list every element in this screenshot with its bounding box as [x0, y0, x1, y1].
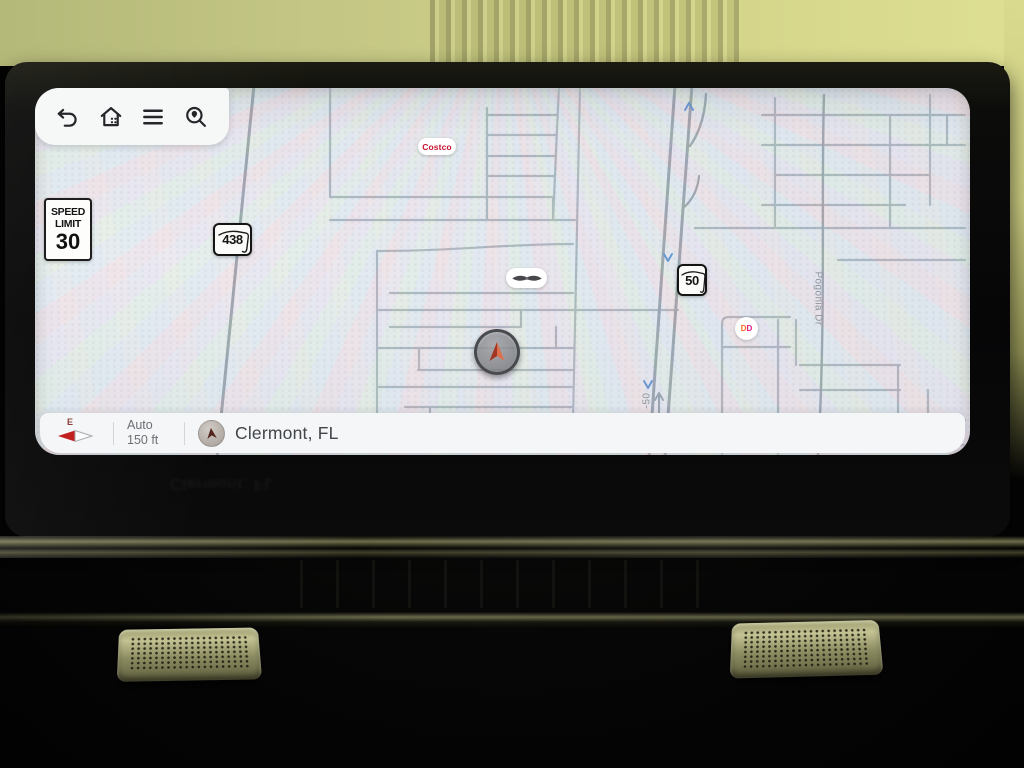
compass-needle-icon: [57, 427, 93, 445]
scale-indicator[interactable]: Auto 150 ft: [127, 418, 171, 448]
compass[interactable]: E: [54, 417, 100, 449]
home-icon: [98, 104, 124, 130]
street-label-pogonia: Pogonia Dr: [813, 269, 824, 329]
location-chip[interactable]: Clermont, FL: [198, 420, 339, 447]
speed-limit-sign: SPEED LIMIT 30: [44, 198, 92, 261]
poi-costco-label[interactable]: Costco: [418, 138, 456, 155]
poi-dunkin-badge[interactable]: DD: [735, 317, 758, 340]
vehicle-marker: [474, 329, 520, 375]
search-button[interactable]: [180, 101, 212, 133]
divider: [113, 422, 114, 445]
location-arrow-icon: [202, 424, 221, 443]
window-background: [0, 0, 1024, 66]
search-location-icon: [183, 104, 209, 130]
dash-trim-upper: [0, 536, 1024, 558]
route-shield-50: 50: [677, 264, 707, 296]
back-button[interactable]: [52, 101, 84, 133]
hamburger-menu-icon: [140, 104, 166, 130]
route-shield-438: 438: [213, 223, 252, 256]
compass-direction-label: E: [67, 417, 73, 427]
right-vent-tab: [730, 620, 884, 679]
menu-button[interactable]: [137, 101, 169, 133]
speed-limit-text-1: SPEED: [51, 207, 85, 218]
location-label: Clermont, FL: [235, 423, 339, 444]
location-arrow-badge: [198, 420, 225, 447]
screen-reflection: Clermont, FL: [170, 474, 690, 492]
shield-number: 50: [685, 273, 699, 288]
speed-limit-text-2: LIMIT: [55, 219, 81, 230]
poi-dealership-badge[interactable]: [506, 268, 547, 288]
vent-mesh: [742, 628, 870, 669]
zoom-mode-label: Auto: [127, 418, 171, 433]
undo-arrow-icon: [55, 104, 81, 130]
navigation-arrow-icon: [484, 339, 510, 365]
dunkin-text: DD: [741, 324, 753, 333]
infotainment-screen[interactable]: Pogonia Dr -50 Costco DD 438: [35, 88, 970, 455]
vent-mesh: [129, 635, 249, 672]
winged-emblem-icon: [511, 273, 543, 284]
scale-value: 150 ft: [127, 433, 171, 448]
display-bezel: Pogonia Dr -50 Costco DD 438: [5, 62, 1010, 537]
home-button[interactable]: [95, 101, 127, 133]
left-vent-tab: [117, 628, 262, 682]
status-bar: E Auto 150 ft Clermont, FL: [40, 413, 965, 453]
vent-slats: [300, 560, 730, 608]
divider: [184, 422, 185, 445]
costco-text: Costco: [422, 142, 451, 152]
window-blinds: [430, 0, 740, 66]
shield-number: 438: [222, 232, 243, 247]
nav-toolbar: [35, 88, 229, 145]
speed-limit-value: 30: [56, 231, 80, 253]
